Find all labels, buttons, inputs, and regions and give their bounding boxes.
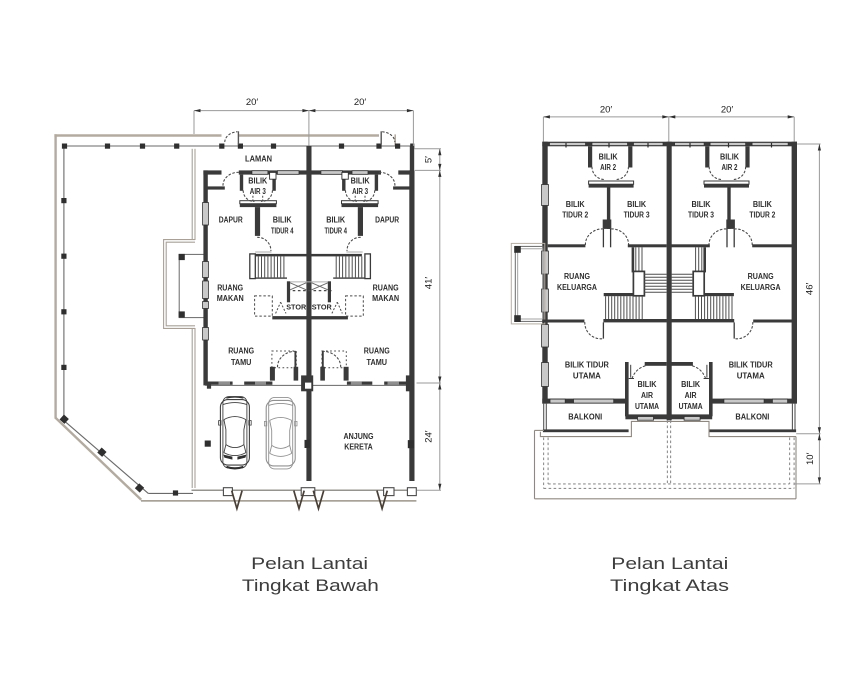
svg-text:RUANG: RUANG bbox=[748, 271, 774, 281]
svg-text:46′: 46′ bbox=[805, 283, 816, 296]
svg-text:BILIK: BILIK bbox=[351, 176, 371, 186]
svg-text:BILIK: BILIK bbox=[720, 152, 740, 162]
svg-text:5′: 5′ bbox=[424, 156, 435, 163]
svg-text:20′: 20′ bbox=[600, 105, 613, 116]
svg-text:RUANG: RUANG bbox=[228, 345, 254, 355]
svg-text:TIDUR 3: TIDUR 3 bbox=[688, 210, 714, 220]
svg-text:20′: 20′ bbox=[354, 97, 367, 108]
svg-text:BILIK: BILIK bbox=[638, 379, 658, 389]
svg-text:BILIK: BILIK bbox=[566, 199, 586, 209]
svg-text:KERETA: KERETA bbox=[344, 441, 373, 451]
svg-text:BILIK: BILIK bbox=[681, 379, 701, 389]
svg-text:TIDUR 2: TIDUR 2 bbox=[562, 210, 588, 220]
svg-text:AIR 2: AIR 2 bbox=[722, 162, 738, 172]
svg-text:RUANG: RUANG bbox=[373, 283, 399, 293]
svg-text:UTAMA: UTAMA bbox=[679, 401, 703, 411]
svg-text:10′: 10′ bbox=[805, 452, 816, 465]
svg-text:BILIK: BILIK bbox=[326, 215, 346, 225]
svg-text:RUANG: RUANG bbox=[217, 283, 243, 293]
svg-text:BILIK: BILIK bbox=[692, 199, 712, 209]
svg-text:TAMU: TAMU bbox=[231, 357, 252, 367]
svg-text:ANJUNG: ANJUNG bbox=[344, 431, 374, 441]
svg-text:DAPUR: DAPUR bbox=[375, 215, 400, 225]
svg-text:AIR: AIR bbox=[641, 390, 654, 400]
svg-text:20′: 20′ bbox=[721, 105, 734, 116]
svg-text:TIDUR 4: TIDUR 4 bbox=[271, 225, 294, 235]
svg-text:STOR: STOR bbox=[312, 302, 332, 311]
svg-text:BILIK: BILIK bbox=[753, 199, 773, 209]
svg-text:BALKONI: BALKONI bbox=[735, 412, 769, 422]
svg-text:Tingkat Atas: Tingkat Atas bbox=[610, 577, 729, 595]
svg-text:Pelan Lantai: Pelan Lantai bbox=[611, 555, 728, 573]
svg-text:BILIK: BILIK bbox=[599, 152, 619, 162]
svg-text:UTAMA: UTAMA bbox=[573, 371, 601, 381]
svg-text:KELUARGA: KELUARGA bbox=[741, 282, 781, 292]
svg-text:BILIK: BILIK bbox=[248, 176, 268, 186]
svg-text:STOR: STOR bbox=[286, 302, 306, 311]
svg-text:TIDUR 2: TIDUR 2 bbox=[749, 210, 775, 220]
svg-text:AIR: AIR bbox=[685, 390, 698, 400]
svg-text:AIR 3: AIR 3 bbox=[352, 186, 368, 196]
svg-text:AIR 3: AIR 3 bbox=[250, 186, 266, 196]
svg-text:BILIK: BILIK bbox=[627, 199, 647, 209]
svg-text:MAKAN: MAKAN bbox=[372, 293, 399, 303]
svg-text:Pelan Lantai: Pelan Lantai bbox=[251, 555, 368, 573]
svg-text:Tingkat Bawah: Tingkat Bawah bbox=[242, 577, 379, 595]
svg-text:MAKAN: MAKAN bbox=[217, 293, 244, 303]
svg-text:LAMAN: LAMAN bbox=[245, 154, 272, 164]
svg-text:TIDUR 3: TIDUR 3 bbox=[624, 210, 650, 220]
svg-text:20′: 20′ bbox=[246, 97, 259, 108]
svg-text:UTAMA: UTAMA bbox=[737, 371, 765, 381]
svg-text:BILIK: BILIK bbox=[273, 215, 293, 225]
svg-text:BILIK TIDUR: BILIK TIDUR bbox=[565, 360, 610, 370]
svg-text:41′: 41′ bbox=[424, 277, 435, 290]
svg-text:AIR 2: AIR 2 bbox=[600, 162, 616, 172]
svg-text:UTAMA: UTAMA bbox=[635, 401, 659, 411]
svg-text:RUANG: RUANG bbox=[564, 271, 590, 281]
svg-text:DAPUR: DAPUR bbox=[219, 215, 244, 225]
svg-text:BILIK TIDUR: BILIK TIDUR bbox=[729, 360, 774, 370]
svg-text:TAMU: TAMU bbox=[367, 357, 388, 367]
svg-text:KELUARGA: KELUARGA bbox=[557, 282, 597, 292]
svg-text:TIDUR 4: TIDUR 4 bbox=[324, 225, 347, 235]
svg-text:RUANG: RUANG bbox=[364, 345, 390, 355]
svg-text:24′: 24′ bbox=[424, 430, 435, 443]
svg-text:BALKONI: BALKONI bbox=[568, 412, 602, 422]
